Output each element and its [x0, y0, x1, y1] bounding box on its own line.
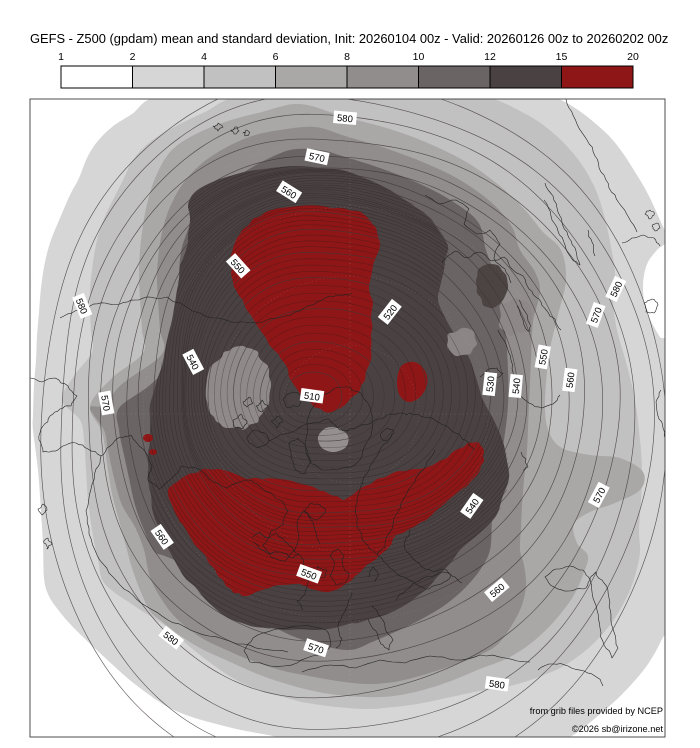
svg-text:540: 540 [511, 378, 523, 395]
svg-text:580: 580 [337, 113, 354, 125]
svg-text:530: 530 [485, 376, 498, 393]
svg-text:8: 8 [344, 51, 350, 63]
svg-text:560: 560 [565, 372, 578, 389]
svg-text:from grib files provided by NC: from grib files provided by NCEP [530, 706, 663, 716]
svg-text:10: 10 [413, 51, 425, 63]
svg-text:15: 15 [556, 51, 568, 63]
svg-text:6: 6 [273, 51, 279, 63]
svg-text:20: 20 [627, 51, 639, 63]
svg-text:GEFS - Z500 (gpdam) mean and s: GEFS - Z500 (gpdam) mean and standard de… [30, 31, 668, 46]
svg-text:580: 580 [488, 679, 505, 692]
svg-text:2: 2 [130, 51, 136, 63]
svg-text:4: 4 [201, 51, 207, 63]
svg-text:1: 1 [58, 51, 64, 63]
svg-text:12: 12 [484, 51, 496, 63]
svg-text:©2026 sb@irizone.net: ©2026 sb@irizone.net [572, 724, 664, 734]
svg-text:510: 510 [303, 391, 320, 404]
